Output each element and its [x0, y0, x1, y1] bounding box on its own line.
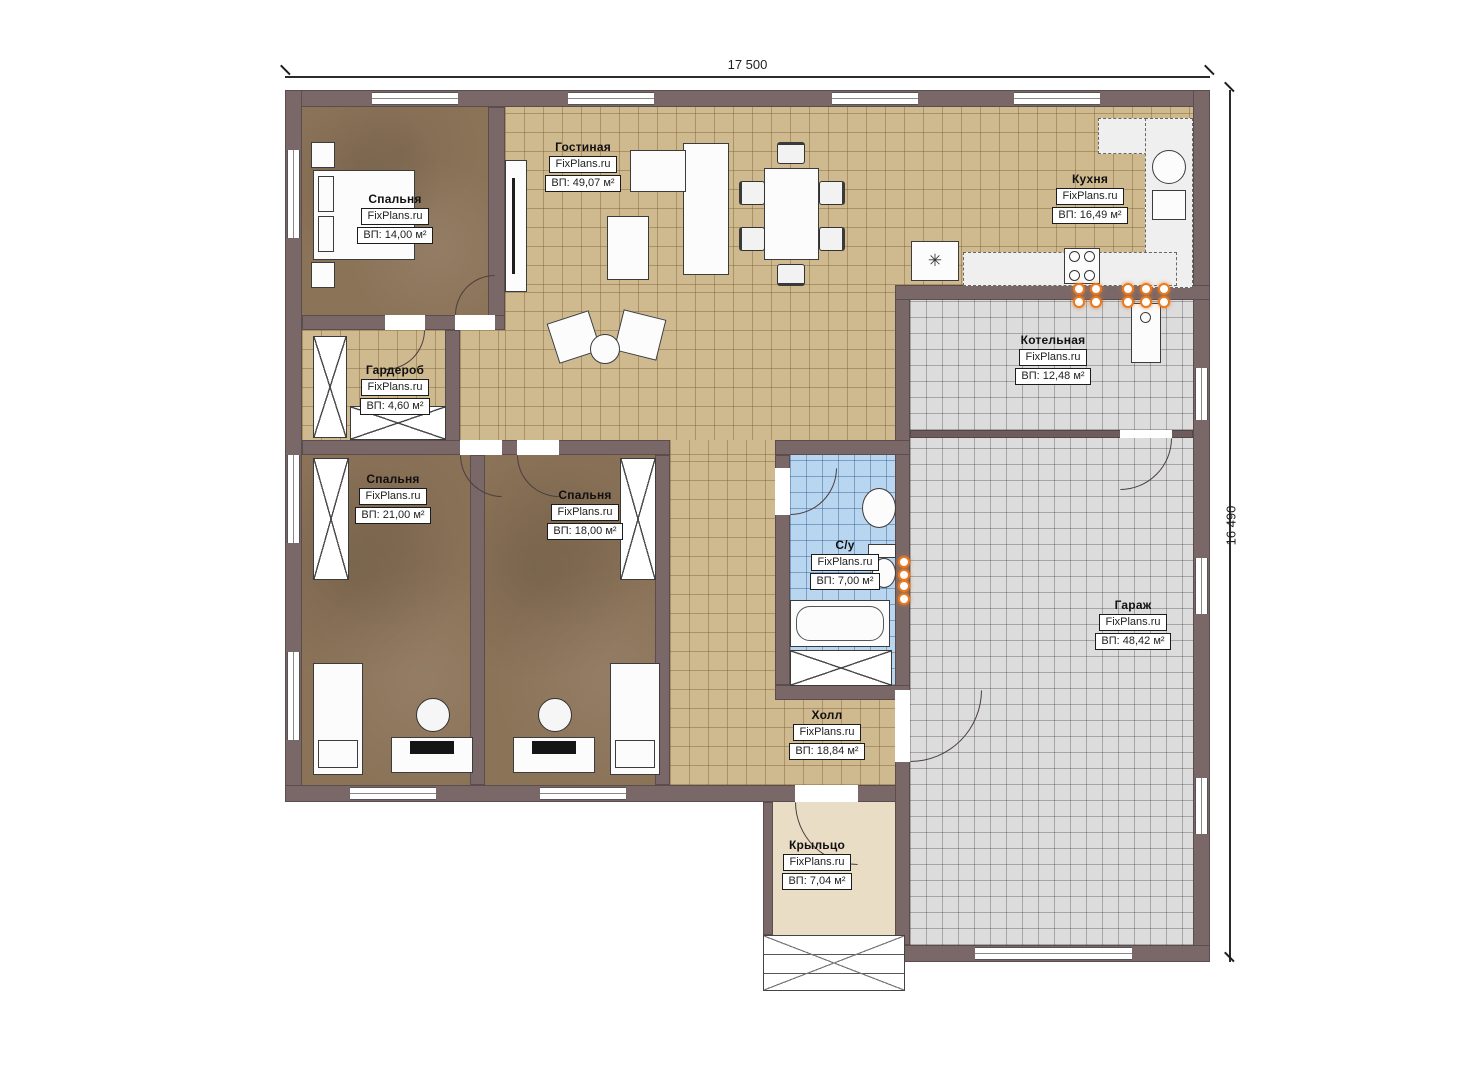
door-opening-bedroom1 — [455, 315, 495, 330]
door-opening-porch — [795, 785, 858, 802]
window — [287, 150, 300, 238]
room-label-bedroom-3: Спальня FixPlans.ru ВП: 18,00 м² — [528, 488, 642, 540]
window — [1195, 368, 1208, 420]
room-name: Гараж — [1115, 598, 1152, 612]
desk-chair — [416, 698, 450, 732]
watermark: FixPlans.ru — [1056, 188, 1123, 205]
room-label-porch: Крыльцо FixPlans.ru ВП: 7,04 м² — [760, 838, 874, 890]
radiator — [898, 580, 910, 605]
room-name: Спальня — [366, 472, 419, 486]
floor-hall-gap — [670, 440, 775, 455]
room-label-wardrobe: Гардероб FixPlans.ru ВП: 4,60 м² — [338, 363, 452, 415]
room-area: ВП: 4,60 м² — [360, 398, 429, 415]
floor-corridor — [460, 330, 505, 445]
dining-chair — [739, 181, 765, 205]
wall-bathroom-top — [775, 440, 910, 455]
dining-chair — [819, 227, 845, 251]
boiler-dial — [1140, 312, 1151, 323]
window — [568, 92, 654, 105]
watermark: FixPlans.ru — [793, 724, 860, 741]
floor-plan: 17 500 16 490 — [0, 0, 1473, 1080]
nightstand — [311, 142, 335, 168]
bathtub-inner — [796, 606, 884, 641]
window — [540, 787, 626, 800]
fridge: ✳ — [911, 241, 959, 281]
room-name: Холл — [812, 708, 843, 722]
radiator — [1140, 283, 1152, 308]
tv — [512, 178, 515, 274]
room-name: Кухня — [1072, 172, 1108, 186]
room-area: ВП: 18,00 м² — [547, 523, 622, 540]
watermark: FixPlans.ru — [361, 208, 428, 225]
watermark: FixPlans.ru — [359, 488, 426, 505]
tv-console — [505, 160, 527, 292]
computer-monitor — [410, 741, 454, 754]
room-area: ВП: 16,49 м² — [1052, 207, 1127, 224]
room-area: ВП: 21,00 м² — [355, 507, 430, 524]
watermark: FixPlans.ru — [361, 379, 428, 396]
room-label-living-room: Гостиная FixPlans.ru ВП: 49,07 м² — [526, 140, 640, 192]
door-opening-hall-garage — [895, 690, 910, 762]
watermark: FixPlans.ru — [1099, 614, 1166, 631]
door-opening-boiler-garage — [1120, 430, 1172, 438]
room-label-kitchen: Кухня FixPlans.ru ВП: 16,49 м² — [1033, 172, 1147, 224]
room-area: ВП: 14,00 м² — [357, 227, 432, 244]
dimension-line-top — [285, 76, 1210, 78]
dining-chair — [739, 227, 765, 251]
coffee-table — [607, 216, 649, 280]
room-name: Крыльцо — [789, 838, 845, 852]
room-area: ВП: 49,07 м² — [545, 175, 620, 192]
nightstand — [311, 262, 335, 288]
room-label-hall: Холл FixPlans.ru ВП: 18,84 м² — [770, 708, 884, 760]
stove — [1064, 248, 1100, 284]
pillow — [318, 176, 334, 212]
window — [287, 652, 300, 740]
room-label-bathroom: С/у FixPlans.ru ВП: 7,00 м² — [795, 538, 895, 590]
dining-chair — [777, 264, 805, 286]
radiator — [1073, 283, 1085, 308]
door-opening-bedroom2 — [460, 440, 502, 455]
radiator — [1122, 283, 1134, 308]
window — [350, 787, 436, 800]
watermark: FixPlans.ru — [551, 504, 618, 521]
window — [1195, 778, 1208, 834]
pillow — [318, 740, 358, 768]
room-name: Котельная — [1021, 333, 1086, 347]
pillow — [318, 216, 334, 252]
watermark: FixPlans.ru — [783, 854, 850, 871]
window — [1014, 92, 1100, 105]
room-label-boiler-room: Котельная FixPlans.ru ВП: 12,48 м² — [996, 333, 1110, 385]
garage-door — [975, 947, 1132, 960]
floor-living-lower — [505, 285, 895, 445]
radiator — [898, 556, 910, 581]
room-name: Спальня — [558, 488, 611, 502]
room-name: Спальня — [368, 192, 421, 206]
dining-table — [764, 168, 819, 260]
side-table — [590, 334, 620, 364]
pillow — [615, 740, 655, 768]
radiator — [1090, 283, 1102, 308]
room-area: ВП: 12,48 м² — [1015, 368, 1090, 385]
dimension-right-value: 16 490 — [1224, 491, 1239, 561]
room-area: ВП: 18,84 м² — [789, 743, 864, 760]
room-name: Гардероб — [366, 363, 424, 377]
window — [287, 455, 300, 543]
porch-steps — [763, 935, 905, 991]
room-name: С/у — [835, 538, 854, 552]
desk-chair — [538, 698, 572, 732]
window — [372, 92, 458, 105]
room-area: ВП: 7,04 м² — [782, 873, 851, 890]
sofa — [683, 143, 729, 275]
door-opening-bathroom — [775, 468, 790, 515]
radiator — [1158, 283, 1170, 308]
bathroom-sink — [862, 488, 896, 528]
dimension-top-value: 17 500 — [285, 57, 1210, 72]
window — [832, 92, 918, 105]
room-label-bedroom-1: Спальня FixPlans.ru ВП: 14,00 м² — [338, 192, 452, 244]
room-area: ВП: 7,00 м² — [810, 573, 879, 590]
watermark: FixPlans.ru — [811, 554, 878, 571]
wall-bedroom2-3-divider — [470, 455, 485, 785]
kitchen-sink — [1152, 150, 1186, 184]
washing-machine — [790, 650, 892, 686]
watermark: FixPlans.ru — [549, 156, 616, 173]
wall-central-vertical — [895, 285, 910, 945]
room-label-bedroom-2: Спальня FixPlans.ru ВП: 21,00 м² — [336, 472, 450, 524]
room-label-garage: Гараж FixPlans.ru ВП: 48,42 м² — [1076, 598, 1190, 650]
door-opening-bedroom3 — [517, 440, 559, 455]
wall-bathroom-bottom — [775, 685, 910, 700]
dining-chair — [819, 181, 845, 205]
watermark: FixPlans.ru — [1019, 349, 1086, 366]
door-opening-wardrobe — [385, 315, 425, 330]
computer-monitor — [532, 741, 576, 754]
dining-chair — [777, 142, 805, 164]
room-name: Гостиная — [555, 140, 611, 154]
kitchen-sink-cabinet — [1152, 190, 1186, 220]
window — [1195, 558, 1208, 614]
room-area: ВП: 48,42 м² — [1095, 633, 1170, 650]
